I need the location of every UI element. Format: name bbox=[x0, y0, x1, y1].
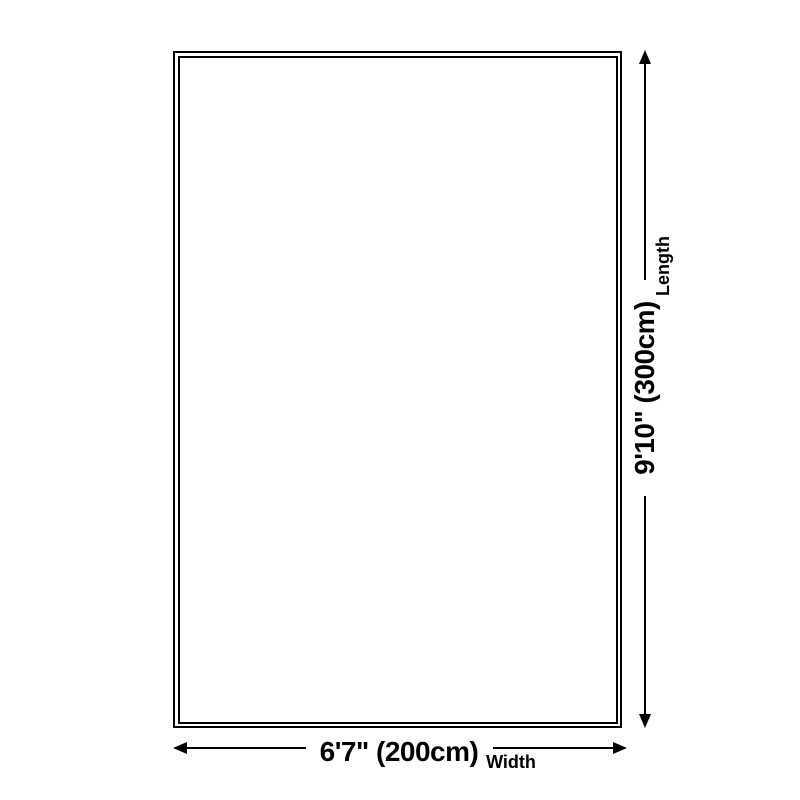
width-label: Width bbox=[486, 753, 536, 771]
length-value: 9'10" (300cm) bbox=[631, 301, 659, 475]
product-outline-inner-border bbox=[178, 56, 618, 724]
arrow-down-icon bbox=[639, 714, 651, 728]
width-value: 6'7" (200cm) bbox=[320, 738, 479, 766]
product-outline bbox=[173, 51, 622, 728]
length-label: Length bbox=[654, 236, 672, 296]
arrow-right-icon bbox=[613, 742, 627, 754]
size-diagram: Length 9'10" (300cm) 6'7" (200cm) Width bbox=[0, 0, 800, 800]
width-arrow-line-left bbox=[184, 747, 306, 750]
length-arrow-line-lower bbox=[644, 496, 647, 716]
width-arrow-line-right bbox=[493, 747, 619, 750]
length-arrow-line-upper bbox=[644, 58, 647, 280]
